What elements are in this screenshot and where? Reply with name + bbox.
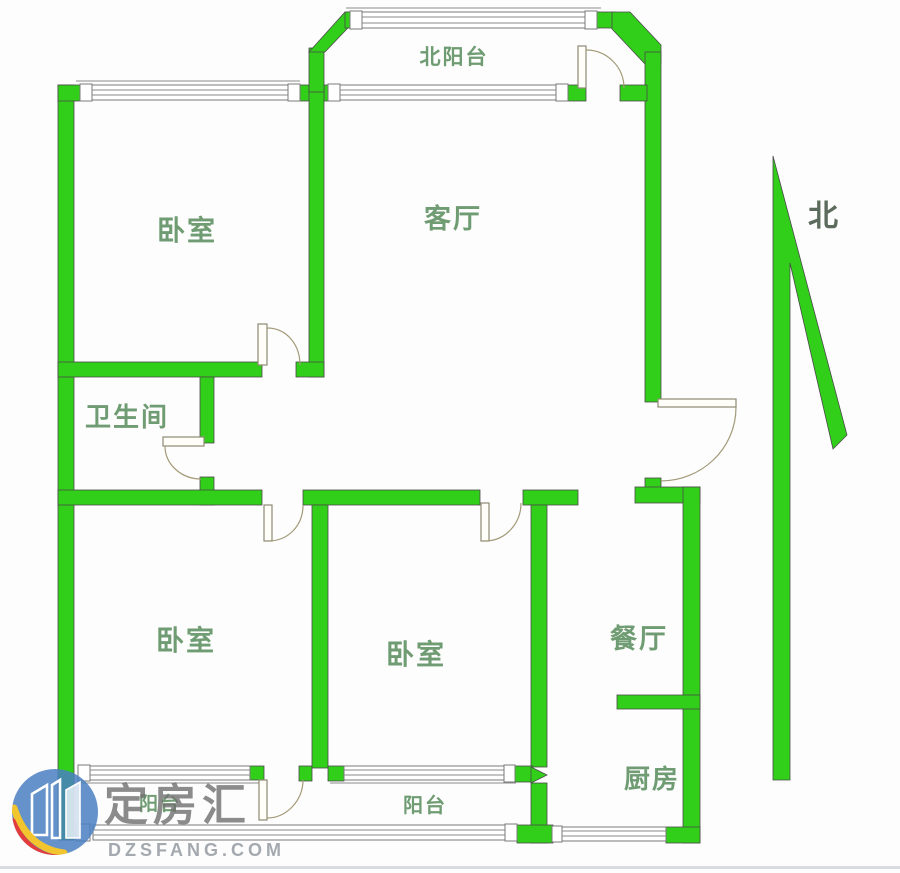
watermark-brand-text: 定房汇 xyxy=(104,781,251,830)
wall-segment xyxy=(683,487,700,843)
watermark-domain-text: DZSFANG.COM xyxy=(108,840,285,860)
label-balcony-middle: 阳台 xyxy=(403,793,447,817)
compass-north-label: 北 xyxy=(808,200,838,233)
wall-segment xyxy=(531,505,547,767)
label-bedroom-lower-middle: 卧室 xyxy=(386,638,446,670)
wall-segment xyxy=(58,85,74,840)
wall-segment xyxy=(303,490,480,505)
wall-segment xyxy=(58,85,82,101)
floorplan-drawing: 北阳台 卧室 客厅 卫生间 卧室 卧室 餐厅 厨房 阳台 阳台 北 定房汇 DZ… xyxy=(0,0,900,873)
label-bathroom: 卫生间 xyxy=(85,402,169,432)
page-bottom-edge xyxy=(0,866,900,869)
label-bedroom-lower-left: 卧室 xyxy=(156,624,216,656)
wall-segment xyxy=(312,505,328,768)
wall-segment xyxy=(58,362,262,377)
label-north-balcony: 北阳台 xyxy=(420,45,489,69)
wall-segment xyxy=(666,827,700,843)
wall-segment xyxy=(517,825,553,843)
window-kitchen-south xyxy=(552,826,666,842)
label-bedroom-top-left: 卧室 xyxy=(157,214,217,246)
window-living-sill xyxy=(328,84,568,101)
wall-segment xyxy=(250,766,264,780)
wall-segment xyxy=(309,48,324,92)
wall-segment xyxy=(515,766,533,782)
wall-segment xyxy=(523,490,578,505)
wall-segment xyxy=(200,377,214,443)
wall-segment xyxy=(58,490,262,505)
watermark: 定房汇 DZSFANG.COM xyxy=(12,769,285,860)
window-bedroom-lower-middle xyxy=(330,765,516,783)
wall-segment xyxy=(309,85,324,377)
label-kitchen: 厨房 xyxy=(624,764,680,794)
wall-segment xyxy=(617,695,700,709)
label-dining-room: 餐厅 xyxy=(610,624,668,654)
background xyxy=(0,0,900,873)
wall-segment xyxy=(328,766,344,781)
wall-segment xyxy=(645,52,661,402)
label-living-room: 客厅 xyxy=(424,203,482,234)
floorplan-canvas: 北阳台 卧室 客厅 卫生间 卧室 卧室 餐厅 厨房 阳台 阳台 北 定房汇 DZ… xyxy=(0,0,900,873)
wall-segment xyxy=(299,766,312,781)
